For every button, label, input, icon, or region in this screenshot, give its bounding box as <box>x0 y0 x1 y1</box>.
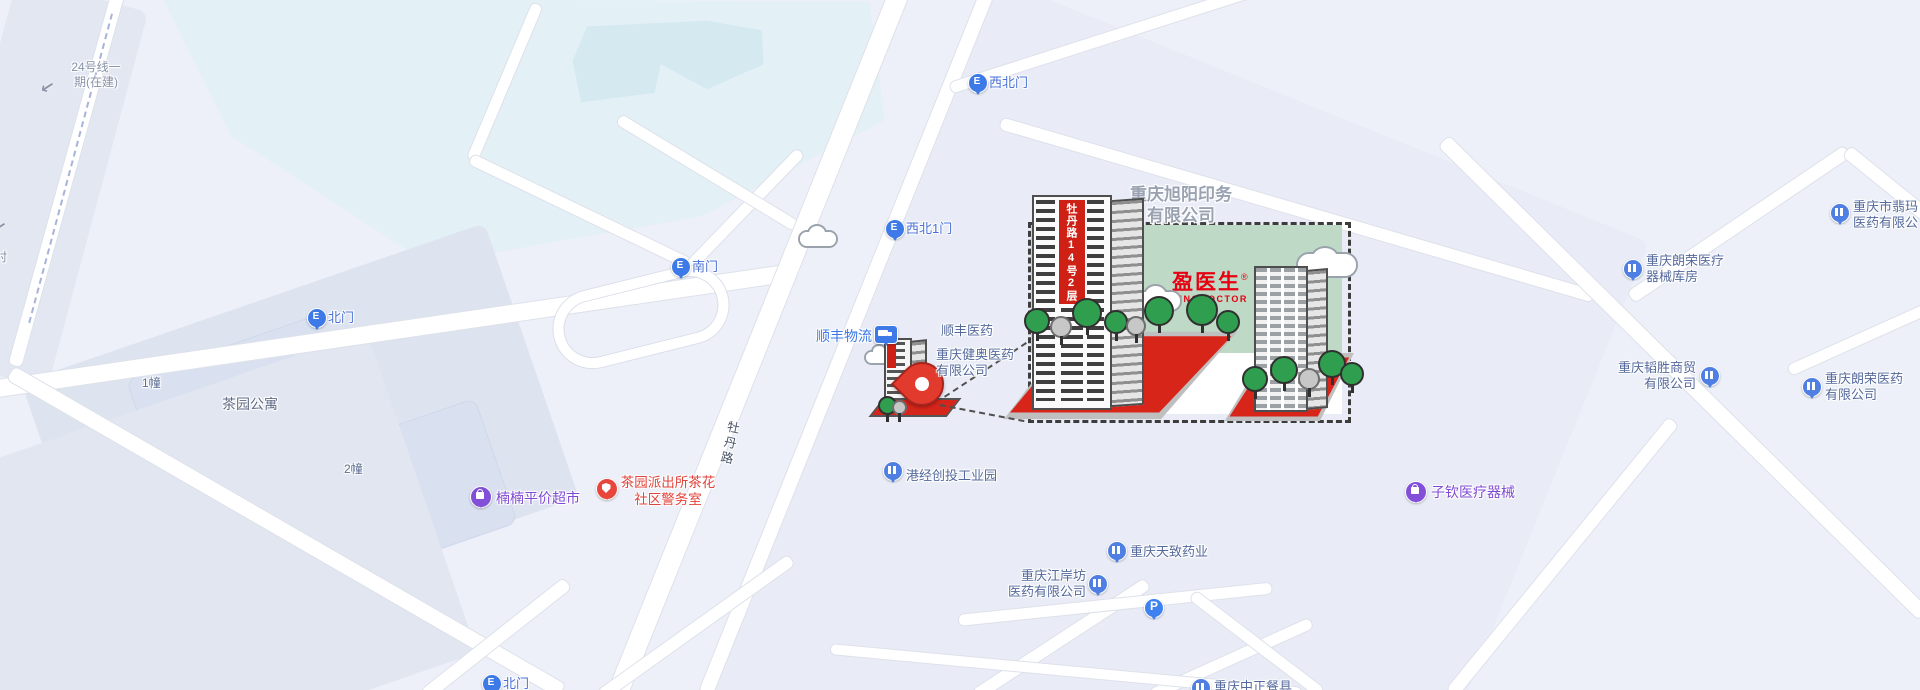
gate-marker-north[interactable]: E <box>307 308 327 328</box>
estate-name-label[interactable]: 茶园公寓 <box>222 396 278 414</box>
langrong-warehouse-label[interactable]: 重庆朗荣医疗器械库房 <box>1646 253 1736 286</box>
gate-label-northwest[interactable]: 西北门 <box>989 75 1028 91</box>
tianzhi-marker[interactable] <box>1107 541 1127 561</box>
metro-line-label: 24号线一期(在建) <box>64 60 128 90</box>
village-label-partial: 村 <box>0 250 7 265</box>
ziqin-marker[interactable] <box>1405 481 1427 503</box>
tree-icon <box>1298 368 1320 390</box>
tianzhi-label[interactable]: 重庆天致药业 <box>1130 544 1208 560</box>
gate-label-north[interactable]: 北门 <box>328 310 354 326</box>
tree-icon <box>1144 296 1174 326</box>
gate-label-north-bottom[interactable]: 北门 <box>503 676 529 690</box>
zhongzheng-label[interactable]: 重庆中正餐具 <box>1214 679 1292 690</box>
jiangan-label[interactable]: 重庆江岸坊医药有限公司 <box>1000 568 1086 601</box>
supermarket-label[interactable]: 楠楠平价超市 <box>496 490 580 508</box>
tree-icon <box>1186 294 1218 326</box>
tree-icon <box>1340 362 1364 386</box>
gate-marker-northwest-1[interactable]: E <box>885 219 905 239</box>
parking-marker[interactable]: P <box>1144 598 1164 618</box>
map-canvas[interactable]: ↙ ↙ 重庆旭阳印务 有限公司 牡丹路14号2层 盈医生® YINGDOCTOR <box>0 0 1920 690</box>
supermarket-marker[interactable] <box>470 486 492 508</box>
gate-marker-south[interactable]: E <box>671 257 691 277</box>
industrial-park-label[interactable]: 港经创投工业园 <box>906 468 997 484</box>
tree-icon <box>1104 310 1128 334</box>
sf-logistics-marker[interactable] <box>874 325 898 344</box>
road-loop <box>545 258 737 377</box>
feima-marker[interactable] <box>1830 203 1850 223</box>
gate-marker-northwest[interactable]: E <box>968 73 988 93</box>
taosheng-marker[interactable] <box>1700 366 1720 386</box>
langrong-pharma-label[interactable]: 重庆朗荣医药有限公司 <box>1825 371 1915 404</box>
ziqin-label[interactable]: 子钦医疗器械 <box>1431 484 1515 502</box>
industrial-park-marker[interactable] <box>883 461 903 481</box>
tree-icon <box>1216 310 1240 334</box>
bush-icon <box>892 400 907 415</box>
tree-icon <box>1270 356 1298 384</box>
tower-address-sign: 牡丹路14号2层 <box>1059 200 1085 304</box>
road-east-branch <box>1786 303 1920 378</box>
jiangan-marker[interactable] <box>1088 574 1108 594</box>
taosheng-label[interactable]: 重庆韬胜商贸有限公司 <box>1608 360 1696 393</box>
langrong-warehouse-marker[interactable] <box>1623 259 1643 279</box>
jianao-label[interactable]: 重庆健奥医药有限公司 <box>936 347 1026 380</box>
gate-label-south[interactable]: 南门 <box>692 259 718 275</box>
tree-icon <box>1024 308 1050 334</box>
sf-pharma-label[interactable]: 顺丰医药 <box>941 323 993 339</box>
langrong-pharma-marker[interactable] <box>1802 377 1822 397</box>
tree-icon <box>1126 316 1146 336</box>
police-station-marker[interactable] <box>596 478 618 500</box>
yingdoctor-illustration: 重庆旭阳印务 有限公司 牡丹路14号2层 盈医生® YINGDOCTOR <box>1020 170 1365 432</box>
building-1-label: 1幢 <box>142 376 161 391</box>
tree-icon <box>1050 316 1072 338</box>
gate-marker-north-bottom[interactable]: E <box>482 674 502 690</box>
building-2-label: 2幢 <box>344 462 363 477</box>
sf-logistics-label[interactable]: 顺丰物流 <box>816 328 872 346</box>
police-station-label[interactable]: 茶园派出所茶花社区警务室 <box>618 475 718 509</box>
cloud-icon <box>798 230 838 248</box>
gate-label-northwest-1[interactable]: 西北1门 <box>906 221 952 237</box>
feima-label[interactable]: 重庆市翡玛医药有限公 <box>1853 199 1920 232</box>
tree-icon <box>1242 366 1268 392</box>
secondary-tower <box>1254 266 1328 412</box>
tower-side-face <box>1110 198 1144 407</box>
tree-icon <box>1072 298 1102 328</box>
brand-name-cn: 盈医生 <box>1172 271 1241 294</box>
